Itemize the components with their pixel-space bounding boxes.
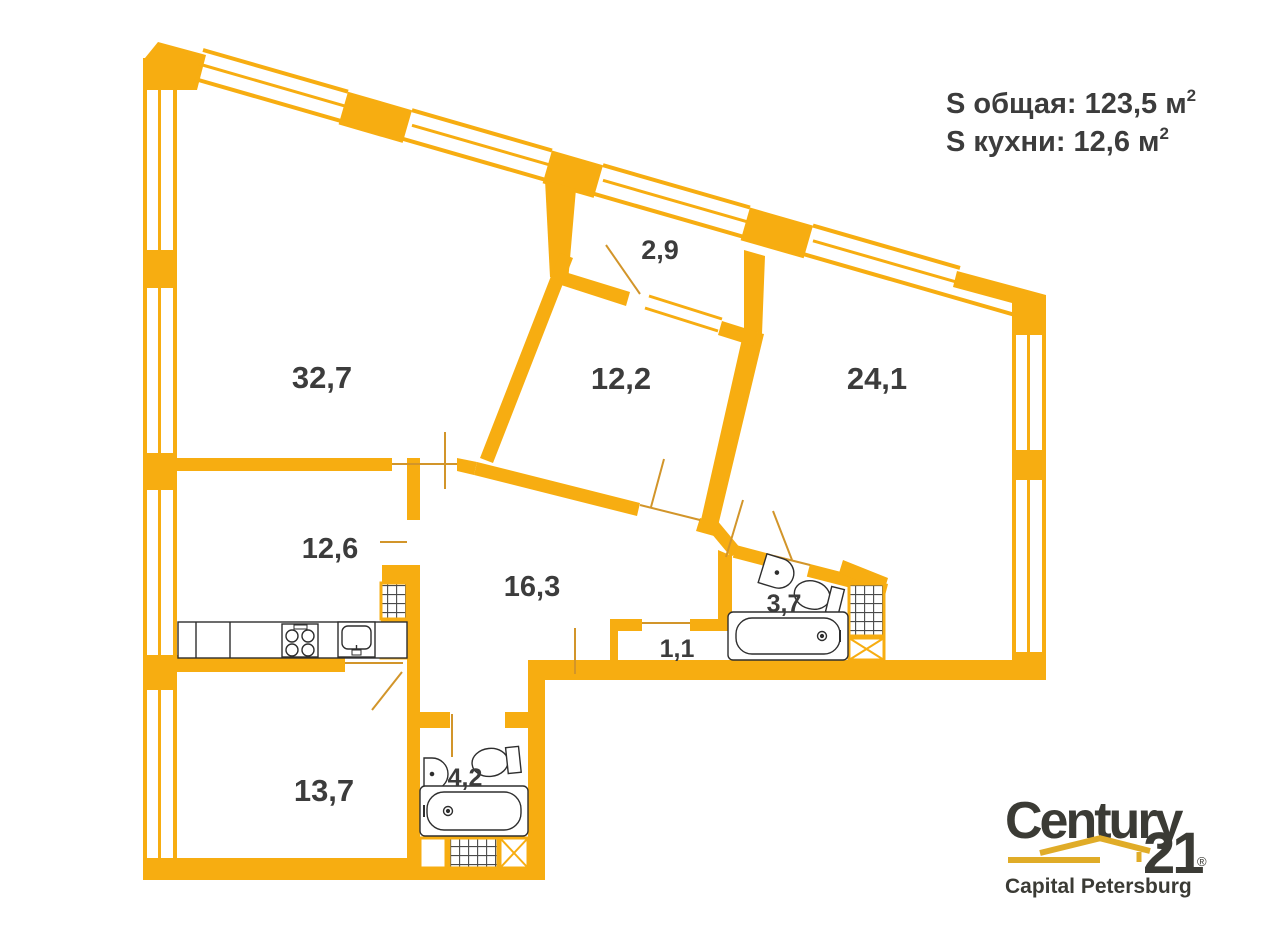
door-bath-small — [773, 511, 792, 560]
sink-icon — [424, 758, 448, 790]
room-label-hallway: 16,3 — [504, 571, 560, 603]
total-area-text: S общая:123,5 м2 — [946, 86, 1196, 120]
floorplan-page: 32,7 2,9 12,2 24,1 12,6 16,3 1,1 3,7 4,2… — [0, 0, 1280, 927]
wall-32-12 — [480, 253, 573, 463]
room-label-bedroom-mid: 12,2 — [591, 361, 651, 396]
room-label-kitchen: 12,6 — [302, 533, 358, 565]
stove-icon — [282, 624, 318, 657]
wall-bath42-north-a — [420, 712, 450, 728]
wall-bottom-right — [545, 660, 1046, 680]
wall-balcony-inner-a — [561, 272, 630, 306]
wall-closet-west — [610, 619, 618, 666]
century21-logo: Century 21 ® Capital Petersburg — [1005, 792, 1207, 898]
wall-balcony-right — [744, 250, 765, 334]
room-label-bathroom-big: 4,2 — [448, 764, 483, 792]
wall-right-outer-line — [1042, 295, 1046, 680]
kitchen-sink-icon — [338, 622, 375, 657]
bathtub-icon — [420, 786, 528, 836]
logo-subtitle-text: Capital Petersburg — [1005, 875, 1192, 898]
shaft-grid-icon — [381, 583, 407, 619]
wall-pier-top-1 — [339, 92, 412, 143]
wall-kitchen-east-a — [407, 458, 420, 520]
shaft-grid-icon — [849, 584, 884, 636]
wall-corner-top-left — [145, 42, 206, 90]
wall-kitchen-east-b — [407, 565, 420, 880]
room-label-closet: 1,1 — [660, 635, 695, 663]
door-bedroom-mid — [651, 459, 664, 507]
wall-step — [528, 660, 545, 880]
room-label-bedroom-right: 24,1 — [847, 361, 907, 396]
shaft-grid-icon — [449, 838, 498, 868]
room-label-balcony: 2,9 — [641, 235, 679, 265]
wall-living-south — [177, 458, 392, 471]
area-summary: S общая:123,5 м2 S кухни:12,6 м2 — [946, 86, 1196, 158]
room-label-bathroom-small: 3,7 — [767, 590, 802, 618]
wall-12-24 — [701, 330, 764, 526]
bathtub-icon — [728, 612, 848, 660]
shaft-plain — [420, 838, 446, 868]
wall-hall-diagonal — [474, 462, 640, 516]
wall-pier-top-3 — [741, 208, 813, 259]
logo-registered-icon: ® — [1197, 854, 1207, 869]
kitchen-fixtures — [178, 622, 407, 658]
door-bedroom-left — [372, 672, 402, 710]
room-label-living: 32,7 — [292, 360, 352, 395]
floor-plan: 32,7 2,9 12,2 24,1 12,6 16,3 1,1 3,7 4,2… — [0, 0, 1280, 927]
wall-bath42-north-b — [505, 712, 540, 728]
room-label-bedroom-left: 13,7 — [294, 773, 354, 808]
kitchen-area-text: S кухни:12,6 м2 — [946, 124, 1169, 158]
